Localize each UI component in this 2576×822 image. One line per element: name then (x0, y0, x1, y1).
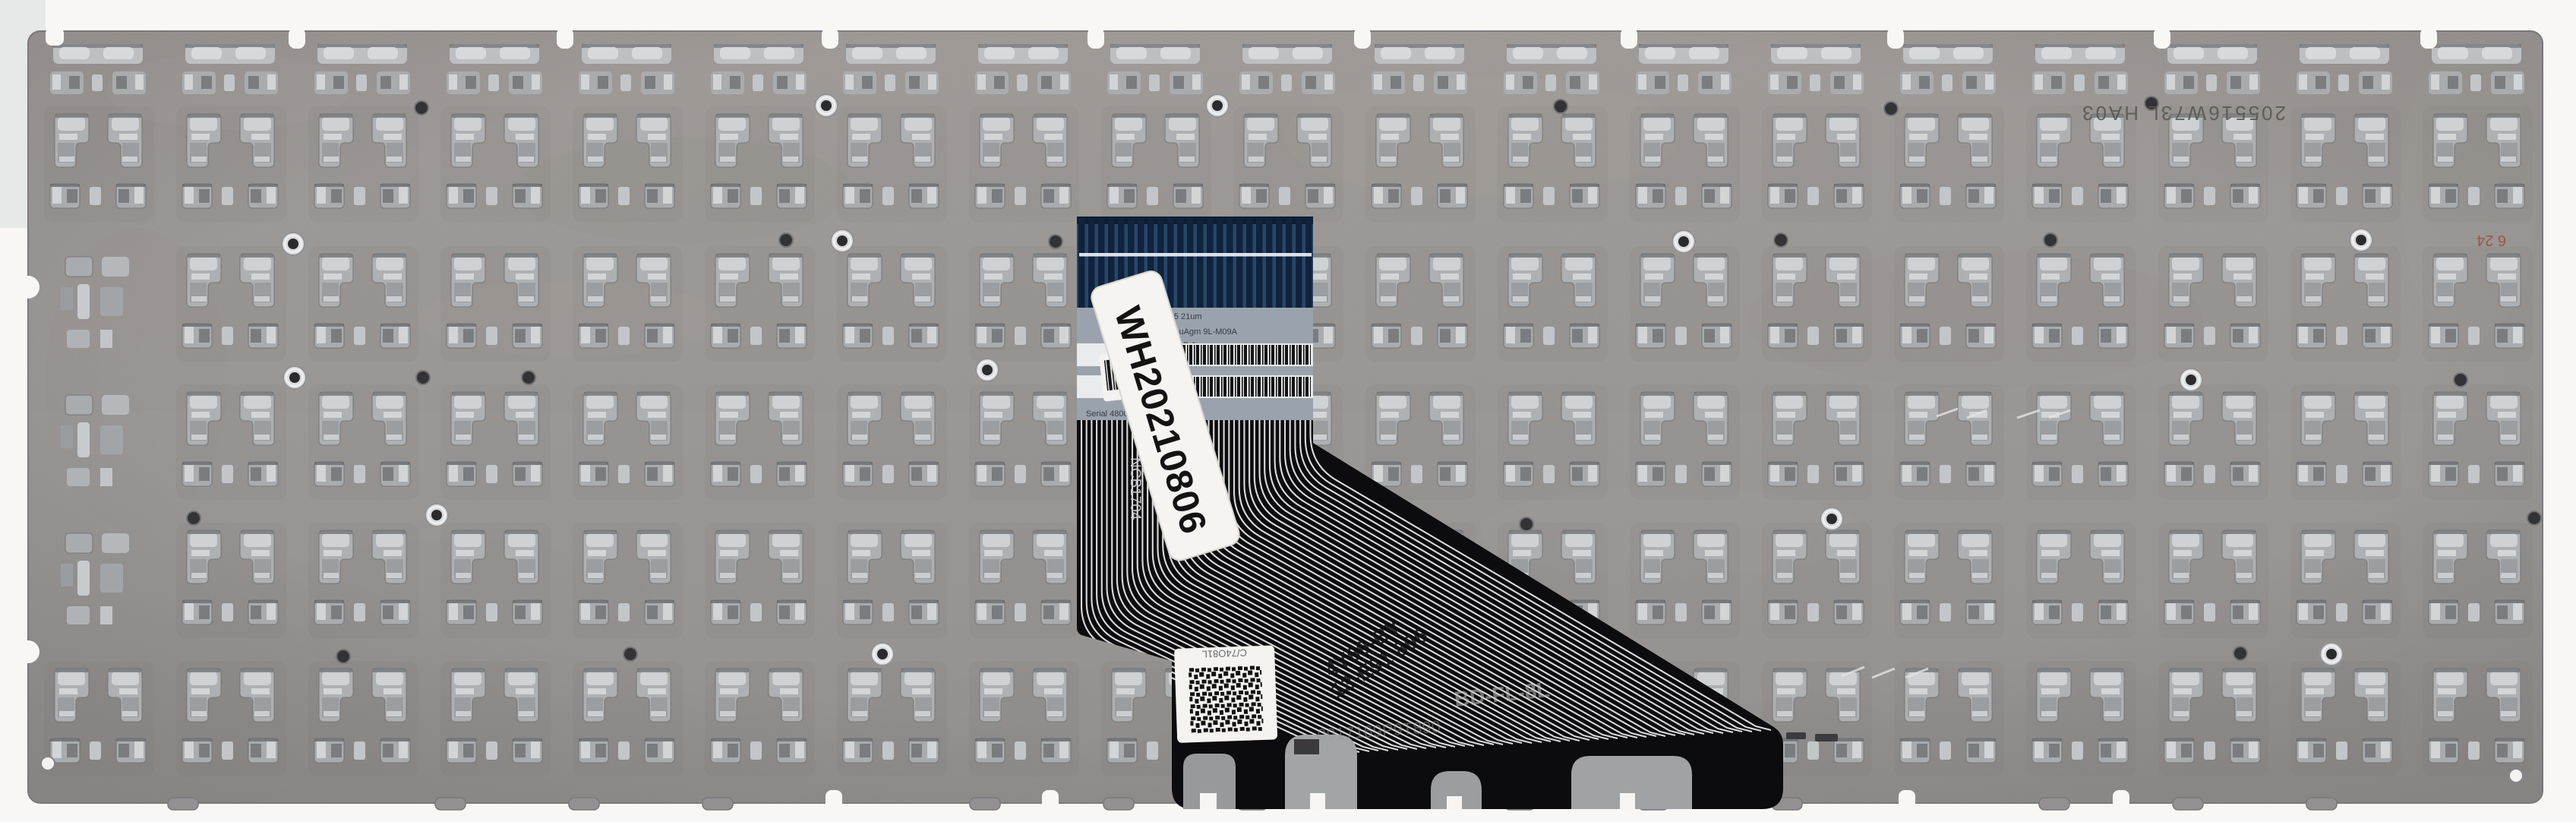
svg-text:6 24: 6 24 (2477, 232, 2506, 248)
svg-text:NCB1704: NCB1704 (1127, 457, 1143, 520)
svg-text:205516W73L HA03: 205516W73L HA03 (2080, 102, 2286, 125)
svg-text:C/74O81L: C/74O81L (1201, 647, 1247, 660)
